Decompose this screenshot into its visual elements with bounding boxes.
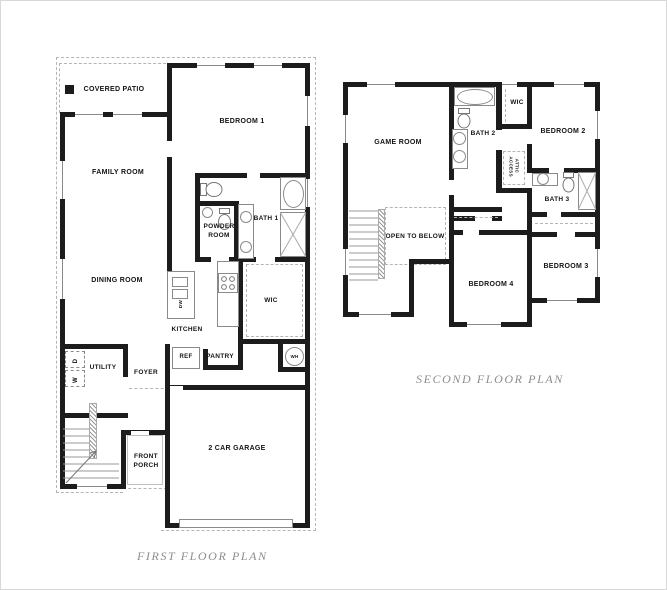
window: [60, 161, 65, 199]
window: [595, 111, 600, 139]
wall: [449, 207, 502, 212]
wall: [449, 230, 532, 235]
roofline-dash: [315, 57, 316, 531]
wall: [165, 385, 310, 390]
second-floor-caption: SECOND FLOOR PLAN: [416, 372, 564, 387]
roofline-dash: [56, 492, 123, 493]
window: [343, 249, 348, 275]
wall: [496, 124, 532, 129]
window: [547, 298, 577, 303]
dishwasher-label: DW: [178, 298, 184, 310]
sink-icon: [240, 241, 252, 253]
kitchen-counter: [217, 261, 239, 327]
cooktop-icon: [218, 273, 238, 293]
wall: [165, 344, 170, 388]
wall: [527, 188, 532, 327]
window: [501, 82, 517, 87]
door-opening: [557, 232, 575, 237]
closet-shelf-dash: [535, 223, 593, 224]
room-label-game-room: GAME ROOM: [368, 138, 428, 147]
room-label-utility: UTILITY: [79, 364, 127, 373]
wall: [195, 257, 211, 262]
room-label-family-room: FAMILY ROOM: [86, 168, 150, 177]
room-label-bedroom1: BEDROOM 1: [210, 117, 274, 126]
wall: [167, 63, 310, 68]
window: [75, 112, 103, 117]
roofline-dash: [161, 530, 316, 531]
shower-icon: [578, 172, 596, 210]
attic-access-label: ATTIC ACCESS: [508, 156, 520, 175]
tub-icon: [457, 89, 493, 105]
window: [343, 115, 348, 143]
room-label-kitchen: KITCHEN: [163, 326, 211, 335]
tub-icon: [283, 180, 304, 208]
wall: [409, 259, 414, 317]
room-label-foyer: FOYER: [124, 369, 168, 378]
window: [367, 82, 395, 87]
room-label-bath1: BATH 1: [249, 215, 283, 224]
washer-label: W: [72, 374, 80, 386]
wall: [203, 365, 243, 370]
roofline-dash: [56, 57, 316, 58]
porch-edge-dash: [123, 488, 167, 489]
stairs: [349, 209, 379, 281]
first-floor-caption: FIRST FLOOR PLAN: [137, 549, 268, 564]
island-sink-icon: [172, 277, 188, 287]
floor-plan-image: COVERED PATIO BATH 1 POWDER ROOM B: [0, 0, 667, 590]
room-label-front-porch: FRONT PORCH: [124, 453, 168, 471]
shower-icon: [280, 212, 306, 257]
window: [359, 312, 391, 317]
wall: [409, 259, 453, 264]
room-label-bedroom2: BEDROOM 2: [531, 127, 595, 136]
stairs-hatch: [378, 209, 385, 279]
door-opening: [547, 212, 561, 217]
toilet-icon: [200, 180, 224, 199]
ref-label: REF: [172, 353, 200, 361]
closet-shelf-dash: [454, 217, 498, 218]
foyer-ceiling-dash: [129, 388, 169, 389]
wall: [278, 367, 310, 372]
room-label-open-to-below: OPEN TO BELOW: [385, 233, 445, 242]
wall: [275, 257, 310, 262]
window: [77, 484, 107, 489]
wall: [527, 212, 600, 217]
window: [197, 63, 225, 68]
wall: [167, 63, 172, 141]
door-opening: [170, 386, 183, 390]
wall: [496, 188, 532, 193]
wall: [496, 150, 502, 192]
room-label-bedroom3: BEDROOM 3: [534, 262, 598, 271]
toilet-icon: [456, 108, 472, 129]
sink-icon: [537, 173, 549, 185]
room-label-bath2: BATH 2: [463, 130, 503, 139]
sink-icon: [202, 207, 213, 218]
wall: [60, 344, 128, 349]
room-label-bedroom4: BEDROOM 4: [459, 280, 523, 289]
wall: [165, 385, 170, 528]
window: [554, 82, 584, 87]
room-label-covered-patio: COVERED PATIO: [74, 85, 154, 94]
window: [113, 112, 142, 117]
wall: [167, 157, 172, 273]
patio-post: [65, 85, 74, 94]
wall: [195, 201, 239, 206]
wall: [238, 339, 310, 344]
roofline-dash: [56, 57, 57, 493]
wall: [305, 63, 310, 528]
attic-access-box: ATTIC ACCESS: [503, 151, 525, 185]
toilet-icon: [561, 172, 576, 194]
room-label-powder-room: POWDER ROOM: [197, 223, 241, 241]
wall: [195, 173, 247, 178]
door-opening: [463, 230, 479, 235]
window: [467, 322, 501, 327]
stairs: [63, 425, 120, 487]
sink-icon: [453, 150, 466, 163]
room-label-garage: 2 CAR GARAGE: [197, 444, 277, 453]
water-heater-label: WH: [285, 354, 304, 360]
garage-door: [179, 519, 293, 528]
room-label-pantry: PANTRY: [198, 353, 242, 362]
wall: [238, 344, 243, 370]
window: [254, 63, 282, 68]
room-label-wic: WIC: [256, 297, 286, 306]
room-label-dining-room: DINING ROOM: [85, 276, 149, 285]
room-label-wic2: WIC: [502, 99, 532, 108]
window: [60, 259, 65, 299]
window: [305, 96, 310, 126]
room-label-bath3: BATH 3: [537, 196, 577, 205]
